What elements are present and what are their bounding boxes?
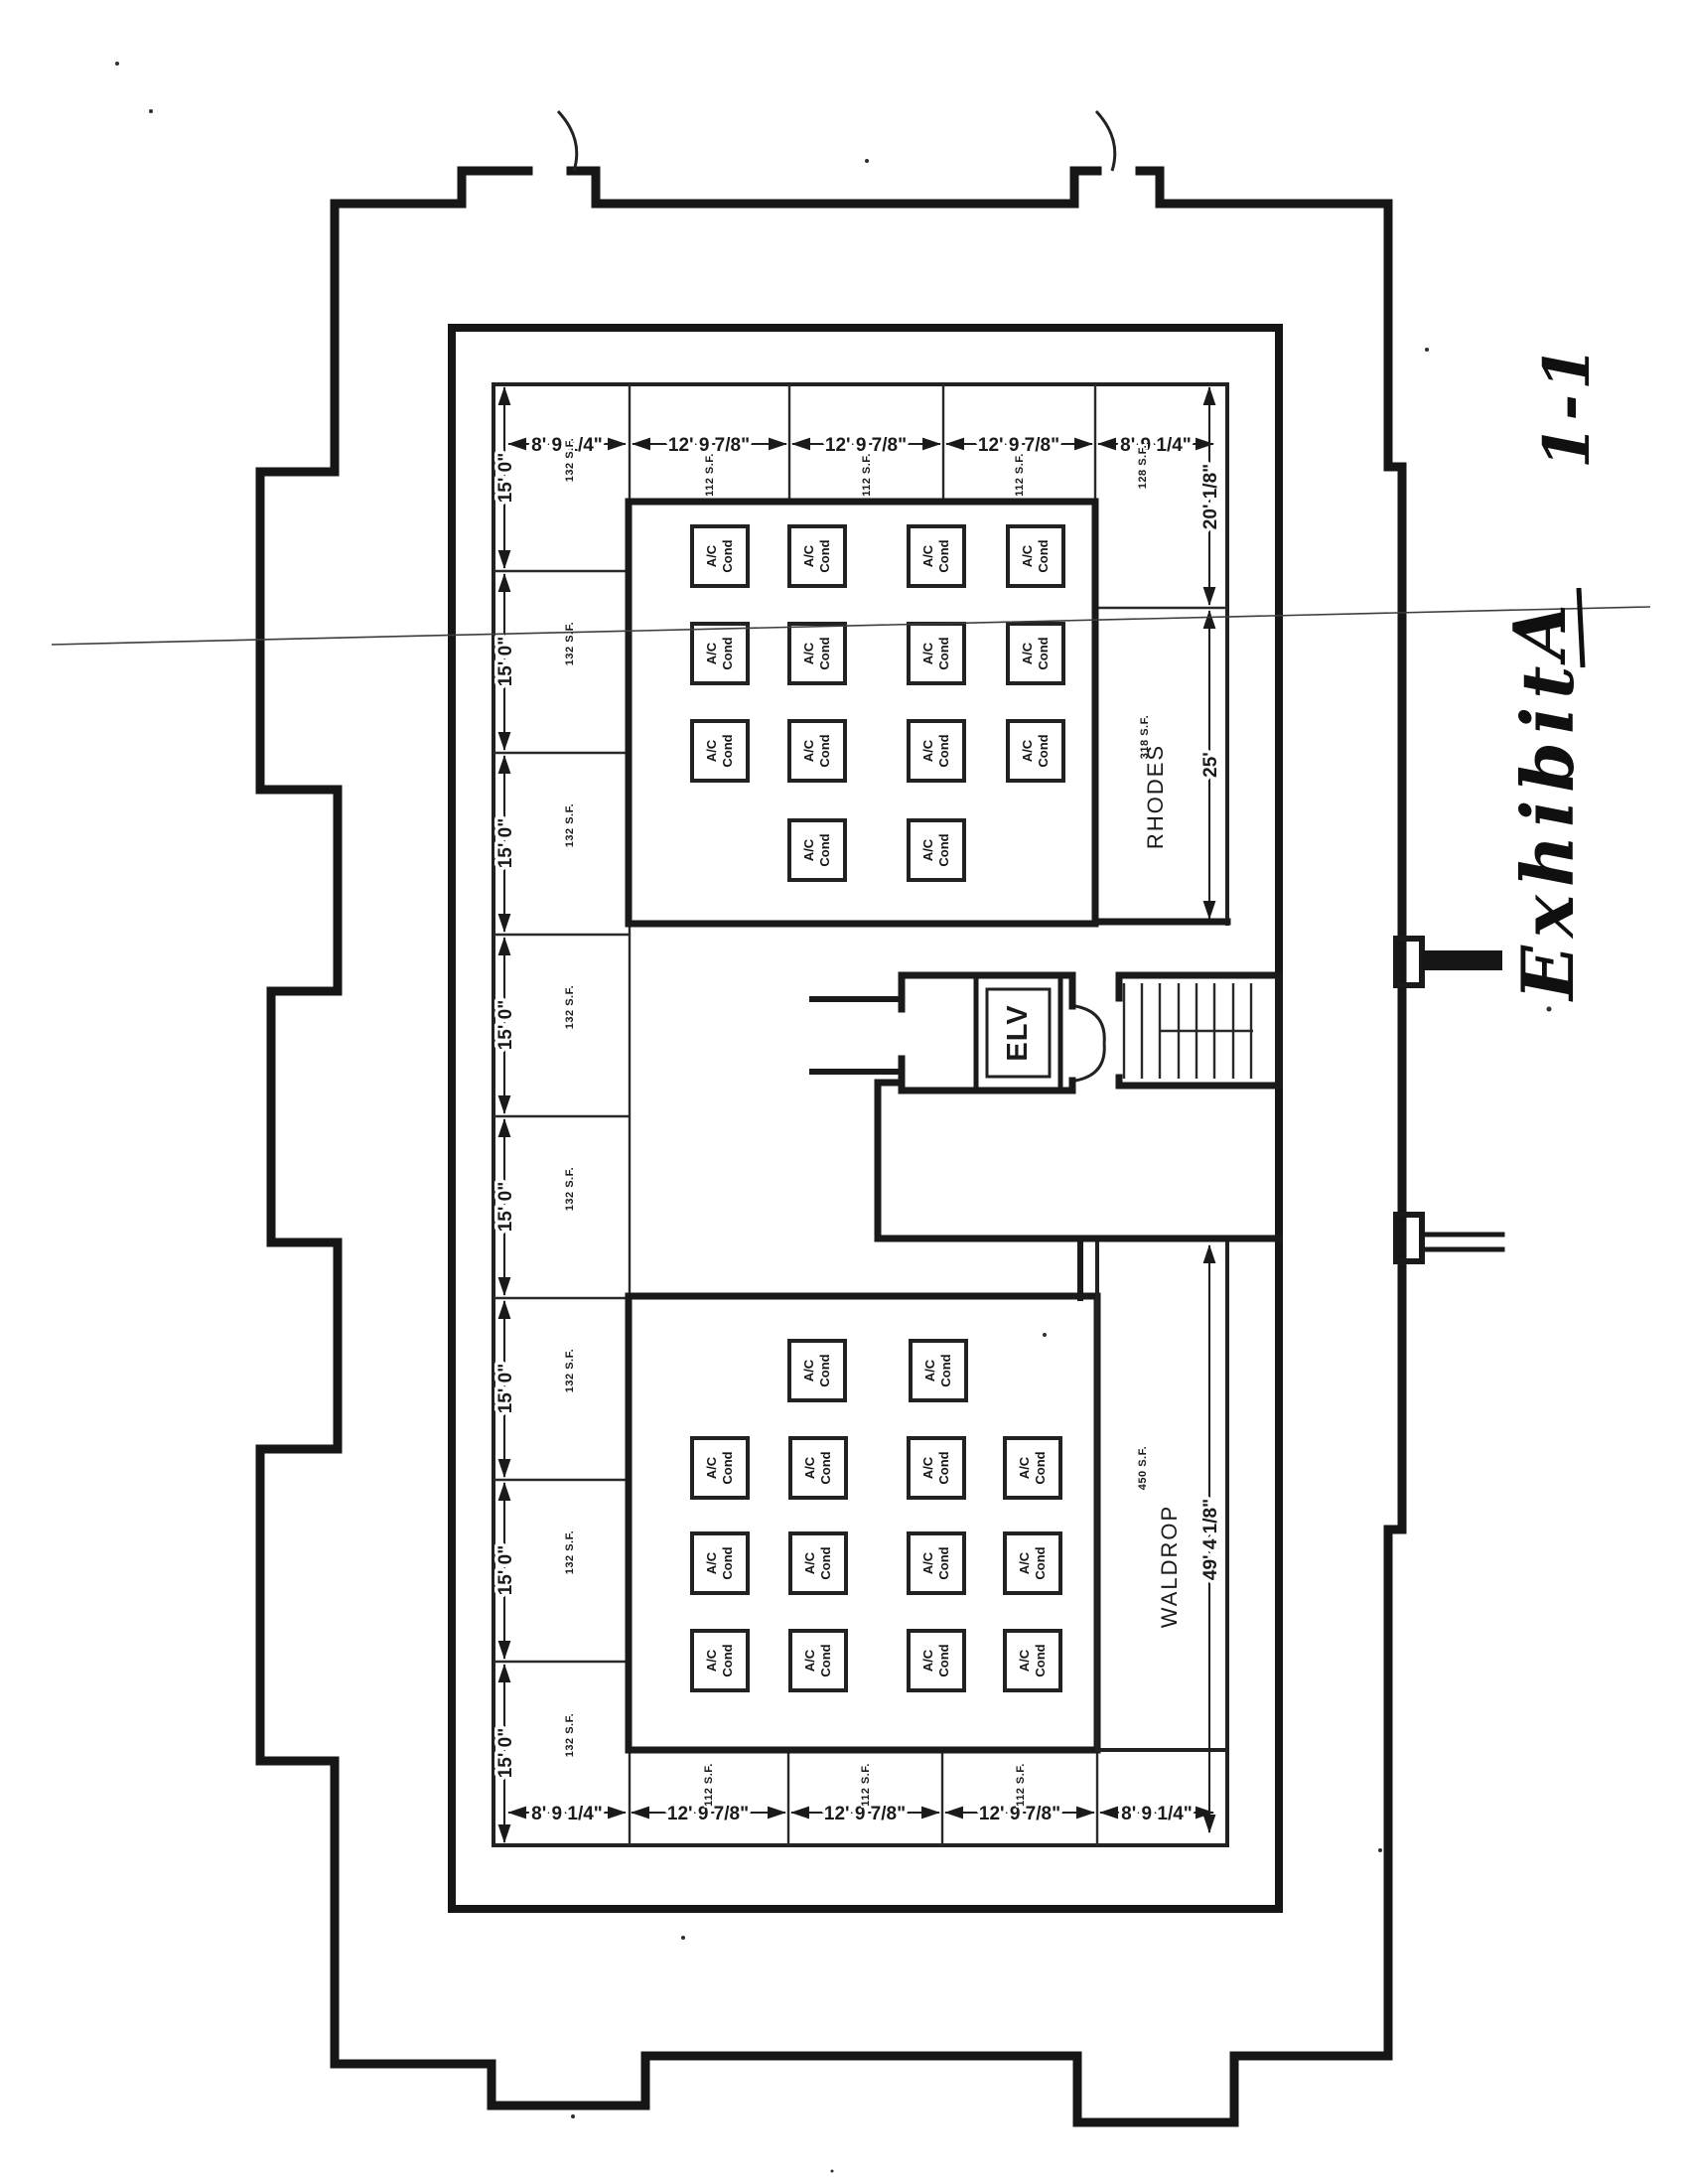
ac-unit bbox=[692, 721, 748, 781]
scan-speck bbox=[1425, 348, 1429, 352]
ac-unit bbox=[909, 624, 964, 683]
scan-speck bbox=[1547, 1007, 1552, 1012]
ac-unit bbox=[790, 1533, 846, 1593]
area-label: 132 S.F. bbox=[564, 438, 576, 482]
area-label: 132 S.F. bbox=[564, 803, 576, 847]
ac-unit bbox=[692, 526, 748, 586]
ac-unit bbox=[789, 526, 845, 586]
room-label-waldrop: WALDROP bbox=[1157, 1505, 1182, 1628]
door-swing-arc-top-right bbox=[1096, 111, 1115, 171]
scan-speck bbox=[115, 62, 119, 66]
ac-unit bbox=[790, 1631, 846, 1690]
dim-label: 15' 0" bbox=[495, 818, 516, 869]
ac-unit bbox=[789, 1341, 845, 1400]
area-label: 132 S.F. bbox=[564, 622, 576, 665]
area-label: 112 S.F. bbox=[704, 453, 716, 497]
dim-label: 8' 9 1/4" bbox=[531, 1804, 603, 1824]
ac-unit bbox=[692, 1631, 748, 1690]
ac-unit bbox=[1005, 1631, 1060, 1690]
area-label: 112 S.F. bbox=[861, 453, 873, 497]
dim-label: 15' 0" bbox=[495, 1545, 516, 1596]
area-label: 132 S.F. bbox=[564, 985, 576, 1029]
ac-unit bbox=[909, 820, 964, 880]
dim-label: 12' 9 7/8" bbox=[978, 435, 1059, 456]
dimensions-left: 15' 0" 15' 0" 15' 0" 15' 0" 15' 0" 15' 0… bbox=[495, 387, 516, 1842]
ac-unit bbox=[909, 1631, 964, 1690]
dim-label: 8' 9 1/4" bbox=[1121, 1804, 1193, 1824]
area-label: 112 S.F. bbox=[860, 1763, 872, 1807]
ac-unit bbox=[909, 721, 964, 781]
ac-unit bbox=[1005, 1533, 1060, 1593]
exhibit-word: Exhibit bbox=[1505, 658, 1590, 1002]
dim-label: 12' 9 7/8" bbox=[668, 435, 750, 456]
scan-speck bbox=[831, 2170, 834, 2173]
scan-speck bbox=[149, 109, 153, 113]
ac-unit bbox=[909, 1533, 964, 1593]
dim-label: 15' 0" bbox=[495, 453, 516, 504]
area-label: 132 S.F. bbox=[564, 1530, 576, 1574]
core-lower-room-walls bbox=[878, 1083, 1279, 1238]
exhibit-number: 1-1 bbox=[1530, 342, 1605, 469]
ac-unit bbox=[1008, 624, 1063, 683]
ac-unit bbox=[789, 721, 845, 781]
lower-equipment-room bbox=[629, 1296, 1097, 1750]
dim-label: 15' 0" bbox=[495, 1000, 516, 1051]
dim-label: 25' bbox=[1200, 752, 1221, 778]
pipe-lower bbox=[1422, 1235, 1502, 1249]
exhibit-annotation: Exhibit A 1-1 bbox=[1497, 342, 1605, 1002]
scan-speck bbox=[1043, 1333, 1047, 1337]
ac-unit bbox=[789, 624, 845, 683]
area-label: 112 S.F. bbox=[1014, 453, 1026, 497]
dim-label: 15' 0" bbox=[495, 1182, 516, 1233]
elevator-label: ELV bbox=[1002, 1004, 1034, 1061]
ac-unit bbox=[909, 526, 964, 586]
ac-unit bbox=[1008, 526, 1063, 586]
dim-label: 20' 1/8" bbox=[1200, 464, 1221, 529]
scan-speck bbox=[1378, 1848, 1382, 1852]
area-label: 132 S.F. bbox=[564, 1349, 576, 1392]
ac-unit bbox=[790, 1438, 846, 1498]
scan-speck bbox=[681, 1936, 685, 1940]
dim-label: 15' 0" bbox=[495, 1364, 516, 1414]
ac-unit bbox=[789, 820, 845, 880]
dim-label: 12' 9 7/8" bbox=[825, 435, 907, 456]
door-swing-arc-top-left bbox=[558, 111, 577, 171]
area-label: 132 S.F. bbox=[564, 1713, 576, 1757]
outer-wall bbox=[260, 171, 1402, 2122]
elevator-lobby-stub-walls bbox=[812, 999, 902, 1072]
area-label: 112 S.F. bbox=[703, 1763, 715, 1807]
dim-label: 8' 9 1/4" bbox=[1120, 435, 1192, 456]
cell-ring-outline bbox=[493, 384, 1227, 1845]
ac-unit bbox=[1008, 721, 1063, 781]
scan-speck bbox=[865, 159, 869, 163]
pipe-upper bbox=[1422, 950, 1502, 970]
exhibit-letter: A bbox=[1497, 596, 1582, 665]
floor-plan-svg: A/CCond ELV bbox=[0, 0, 1688, 2184]
ac-unit bbox=[692, 1438, 748, 1498]
ac-unit bbox=[909, 1438, 964, 1498]
dimensions-right: 20' 1/8" 25' 49' 4 1/8" bbox=[1200, 387, 1221, 1832]
dimensions-top: 8' 9 1/4" 12' 9 7/8" 12' 9 7/8" 12' 9 7/… bbox=[508, 435, 1213, 456]
room-label-rhodes: RHODES bbox=[1143, 744, 1168, 849]
ac-unit bbox=[692, 624, 748, 683]
double-door-arcs bbox=[1075, 1006, 1104, 1081]
roof-boundary bbox=[452, 328, 1279, 1909]
ac-unit bbox=[1005, 1438, 1060, 1498]
stair-treads bbox=[1124, 983, 1253, 1079]
area-label: 450 S.F. bbox=[1137, 1446, 1149, 1490]
dim-label: 15' 0" bbox=[495, 637, 516, 687]
dim-label: 49' 4 1/8" bbox=[1200, 1499, 1221, 1580]
cell-dividers bbox=[493, 384, 1227, 1845]
scan-speck bbox=[571, 2114, 575, 2118]
scanned-floor-plan-page: A/CCond ELV bbox=[0, 0, 1688, 2184]
ac-unit bbox=[692, 1533, 748, 1593]
area-label: 128 S.F. bbox=[1137, 445, 1149, 489]
area-label: 132 S.F. bbox=[564, 1167, 576, 1211]
fold-line bbox=[52, 607, 1650, 645]
ac-unit bbox=[911, 1341, 966, 1400]
dim-label: 15' 0" bbox=[495, 1728, 516, 1779]
area-label: 112 S.F. bbox=[1015, 1763, 1027, 1807]
